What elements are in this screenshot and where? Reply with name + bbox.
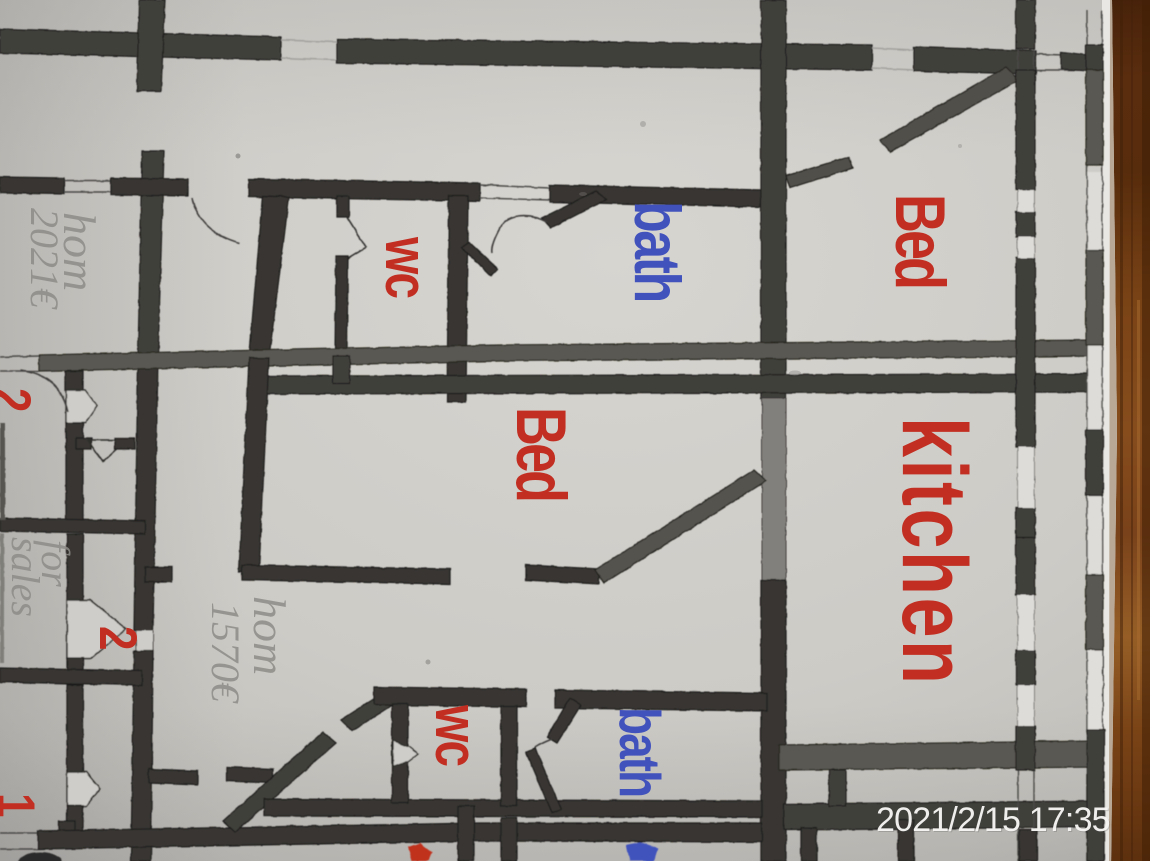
- svg-text:2: 2: [88, 626, 147, 650]
- svg-text:bath: bath: [607, 707, 671, 796]
- svg-text:Bed: Bed: [501, 407, 579, 500]
- svg-text:wc: wc: [423, 704, 490, 766]
- svg-text:wc: wc: [373, 236, 440, 298]
- svg-text:Bed: Bed: [880, 194, 958, 287]
- svg-text:2021/2/15 17:35: 2021/2/15 17:35: [876, 801, 1110, 839]
- svg-text:1570€: 1570€: [203, 602, 248, 704]
- svg-text:hom: hom: [244, 596, 295, 675]
- svg-text:2: 2: [0, 388, 41, 412]
- svg-text:1: 1: [0, 793, 45, 817]
- svg-text:sales: sales: [3, 537, 48, 617]
- svg-text:bath: bath: [621, 201, 693, 301]
- svg-text:2021€: 2021€: [22, 208, 67, 310]
- svg-text:kitchen: kitchen: [883, 417, 987, 687]
